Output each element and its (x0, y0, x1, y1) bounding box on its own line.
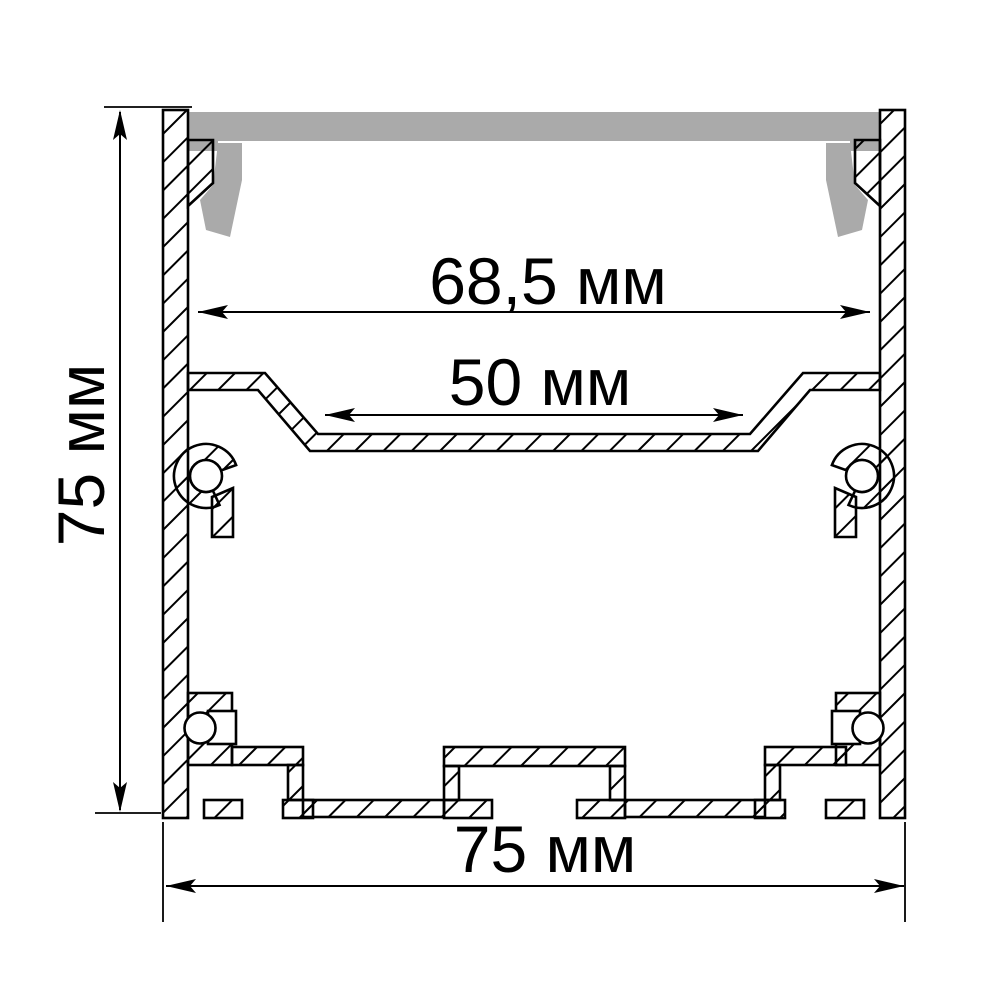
foot-right-mid (755, 800, 785, 818)
screw-hole-lower-right (853, 713, 884, 744)
dimension-label-overall-width: 75 мм (454, 812, 637, 886)
center-channel-top (444, 747, 625, 766)
dimension-label-height: 75 мм (44, 364, 118, 547)
bottom-leg-right (765, 765, 780, 800)
foot-left-inner (204, 800, 242, 818)
base-plate-right (625, 800, 765, 817)
screw-hole-upper-right (846, 460, 878, 492)
screw-hole-lower-left (185, 713, 216, 744)
screw-hole-upper-left (190, 460, 222, 492)
screw-boss-holes (185, 460, 884, 744)
center-channel-leg-left (444, 766, 459, 800)
dimension-lines (120, 112, 904, 886)
foot-right-inner (826, 800, 864, 818)
aluminium-body (163, 110, 905, 818)
screw-boss-upper-left-tab (212, 488, 233, 537)
profile-drawing-page: 68,5 мм 50 мм 75 мм 75 мм (0, 0, 1001, 1001)
base-plate-left (303, 800, 444, 817)
bottom-bar-right (765, 747, 846, 765)
diffuser-plate (188, 112, 880, 141)
bottom-bar-left (232, 747, 303, 765)
profile-cross-section-diagram: 68,5 мм 50 мм 75 мм 75 мм (0, 0, 1001, 1001)
center-channel-leg-right (610, 766, 625, 800)
bottom-leg-left (288, 765, 303, 800)
screw-boss-upper-right-tab (835, 488, 856, 537)
dimension-label-inner-width: 68,5 мм (429, 244, 667, 318)
diffuser-cover (188, 112, 880, 237)
dimension-label-shelf-width: 50 мм (449, 345, 632, 419)
